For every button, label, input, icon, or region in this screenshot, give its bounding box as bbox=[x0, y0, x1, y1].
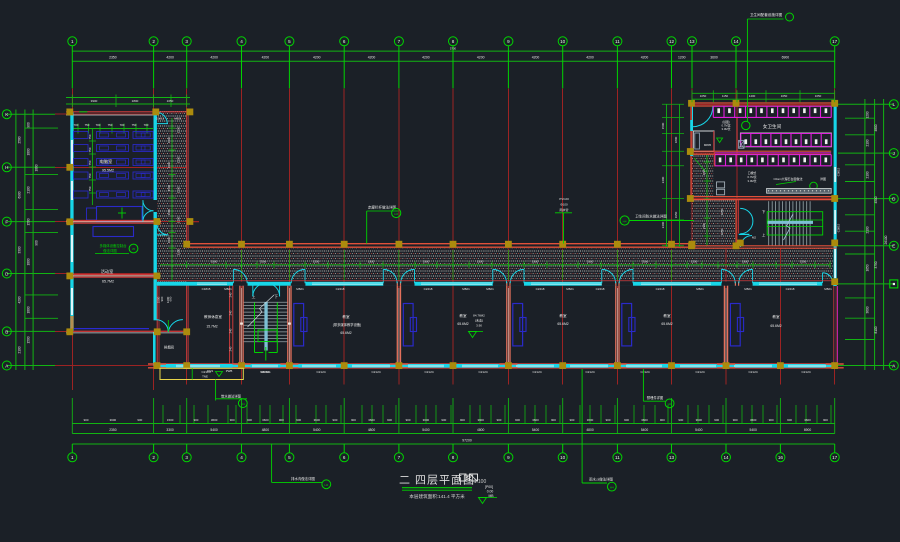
svg-text:2350: 2350 bbox=[109, 428, 117, 432]
svg-text:6900: 6900 bbox=[804, 428, 812, 432]
svg-text:C0815: C0815 bbox=[837, 223, 841, 232]
svg-text:750: 750 bbox=[88, 186, 92, 191]
svg-text:900: 900 bbox=[332, 418, 337, 422]
svg-text:5400: 5400 bbox=[641, 428, 649, 432]
svg-text:2100: 2100 bbox=[702, 222, 706, 229]
svg-text:750: 750 bbox=[85, 123, 90, 127]
svg-text:3600: 3600 bbox=[314, 418, 321, 422]
svg-text:上: 上 bbox=[252, 294, 256, 299]
svg-text:3600: 3600 bbox=[423, 418, 430, 422]
svg-text:排烟间: 排烟间 bbox=[164, 345, 174, 350]
svg-text:3600: 3600 bbox=[211, 418, 218, 422]
svg-text:3: 3 bbox=[185, 39, 188, 44]
svg-text:本层建筑面积:141.4 平方米: 本层建筑面积:141.4 平方米 bbox=[409, 493, 465, 500]
svg-text:4200: 4200 bbox=[262, 56, 270, 60]
svg-text:3600: 3600 bbox=[532, 418, 539, 422]
svg-text:7: 7 bbox=[398, 39, 401, 44]
svg-text:TNE: TNE bbox=[202, 375, 208, 379]
svg-text:1200: 1200 bbox=[866, 111, 870, 118]
svg-text:4200: 4200 bbox=[18, 296, 22, 303]
svg-text:3300: 3300 bbox=[532, 259, 539, 263]
svg-text:3600: 3600 bbox=[804, 418, 811, 422]
svg-text:C2124: C2124 bbox=[801, 370, 810, 374]
svg-text:2: 2 bbox=[152, 455, 155, 460]
svg-text:240: 240 bbox=[229, 292, 233, 297]
svg-text:E: E bbox=[892, 244, 895, 249]
svg-text:教室: 教室 bbox=[459, 313, 467, 318]
svg-text:2580: 2580 bbox=[18, 136, 22, 143]
svg-text:H4: H4 bbox=[241, 402, 245, 406]
svg-text:750: 750 bbox=[88, 173, 92, 178]
svg-text:5400: 5400 bbox=[695, 428, 703, 432]
svg-text:65.6M2: 65.6M2 bbox=[340, 331, 351, 335]
svg-text:2350: 2350 bbox=[109, 56, 117, 60]
svg-text:4800: 4800 bbox=[874, 124, 878, 131]
svg-text:M805: M805 bbox=[704, 143, 712, 147]
svg-text:26100: 26100 bbox=[884, 235, 888, 244]
svg-text:6: 6 bbox=[343, 455, 346, 460]
svg-text:12: 12 bbox=[669, 39, 675, 44]
svg-text:11: 11 bbox=[615, 39, 620, 44]
svg-text:5400: 5400 bbox=[422, 428, 430, 432]
svg-text:3900: 3900 bbox=[91, 99, 98, 103]
svg-text:0.00: 0.00 bbox=[487, 490, 494, 494]
svg-text:C1815: C1815 bbox=[156, 117, 165, 121]
svg-text:3300: 3300 bbox=[368, 259, 375, 263]
svg-text:1521: 1521 bbox=[207, 369, 214, 373]
svg-text:H4: H4 bbox=[324, 483, 328, 487]
svg-text:2100: 2100 bbox=[177, 248, 181, 255]
svg-text:900: 900 bbox=[387, 418, 392, 422]
svg-text:C1815: C1815 bbox=[202, 287, 211, 291]
svg-text:900: 900 bbox=[733, 418, 738, 422]
svg-text:3600: 3600 bbox=[641, 418, 648, 422]
svg-text:C2418: C2418 bbox=[596, 287, 605, 291]
svg-text:C2418: C2418 bbox=[786, 287, 795, 291]
svg-text:700: 700 bbox=[144, 123, 149, 127]
svg-text:900: 900 bbox=[194, 418, 199, 422]
svg-text:下: 下 bbox=[762, 210, 766, 214]
svg-text:900: 900 bbox=[441, 418, 446, 422]
svg-text:95.5M2: 95.5M2 bbox=[102, 169, 114, 173]
svg-text:3300: 3300 bbox=[642, 259, 649, 263]
svg-text:1500: 1500 bbox=[167, 236, 171, 243]
svg-text:M821: M821 bbox=[224, 287, 232, 291]
svg-text:教室: 教室 bbox=[559, 313, 567, 318]
svg-text:4800: 4800 bbox=[477, 428, 485, 432]
svg-text:M821: M821 bbox=[744, 287, 752, 291]
svg-text:教师休息室: 教师休息室 bbox=[204, 314, 222, 319]
svg-text:1650: 1650 bbox=[815, 94, 822, 98]
svg-text:900: 900 bbox=[551, 418, 556, 422]
svg-text:教室: 教室 bbox=[663, 313, 671, 318]
svg-text:预埋件详图: 预埋件详图 bbox=[647, 395, 664, 400]
svg-text:4200: 4200 bbox=[210, 56, 218, 60]
svg-text:M2: M2 bbox=[752, 236, 756, 240]
svg-text:900: 900 bbox=[769, 418, 774, 422]
svg-text:J5: J5 bbox=[132, 247, 136, 251]
svg-text:H: H bbox=[5, 165, 8, 170]
svg-text:4200: 4200 bbox=[166, 56, 174, 60]
svg-text:9: 9 bbox=[507, 39, 510, 44]
svg-text:900: 900 bbox=[606, 418, 611, 422]
svg-text:女卫生间: 女卫生间 bbox=[763, 123, 782, 130]
svg-text:F: F bbox=[5, 220, 8, 225]
svg-text:14: 14 bbox=[723, 455, 729, 460]
svg-text:900: 900 bbox=[460, 418, 465, 422]
svg-text:3600: 3600 bbox=[587, 418, 594, 422]
svg-text:排水沟做法详图: 排水沟做法详图 bbox=[291, 476, 315, 481]
svg-text:1950: 1950 bbox=[674, 211, 678, 218]
svg-text:4200: 4200 bbox=[641, 56, 649, 60]
svg-text:1500: 1500 bbox=[27, 336, 31, 343]
svg-text:1800: 1800 bbox=[27, 258, 31, 265]
svg-text:雨水斗做法详图: 雨水斗做法详图 bbox=[589, 477, 613, 482]
svg-text:5400: 5400 bbox=[532, 428, 540, 432]
svg-text:3300: 3300 bbox=[423, 259, 430, 263]
svg-text:8: 8 bbox=[452, 39, 455, 44]
svg-text:11: 11 bbox=[615, 455, 620, 460]
svg-text:2100: 2100 bbox=[177, 186, 181, 193]
svg-text:3600: 3600 bbox=[750, 418, 757, 422]
svg-text:C2418: C2418 bbox=[336, 287, 345, 291]
svg-text:2100: 2100 bbox=[866, 171, 870, 178]
svg-text:C2124: C2124 bbox=[478, 370, 487, 374]
svg-text:C0815: C0815 bbox=[837, 167, 841, 176]
svg-text:5: 5 bbox=[288, 455, 291, 460]
svg-text:教室: 教室 bbox=[772, 314, 780, 319]
svg-text:2400: 2400 bbox=[661, 221, 665, 228]
svg-text:4200: 4200 bbox=[313, 56, 321, 60]
svg-text:5400: 5400 bbox=[313, 428, 321, 432]
svg-text:700: 700 bbox=[96, 123, 101, 127]
svg-text:4800: 4800 bbox=[368, 428, 376, 432]
svg-text:M821: M821 bbox=[824, 287, 832, 291]
svg-text:4200: 4200 bbox=[532, 56, 540, 60]
svg-text:1400: 1400 bbox=[749, 94, 756, 98]
svg-text:3300: 3300 bbox=[587, 259, 594, 263]
svg-text:16: 16 bbox=[778, 455, 784, 460]
svg-text:1500: 1500 bbox=[27, 218, 31, 225]
svg-text:PWB: PWB bbox=[226, 369, 233, 373]
svg-text:H4: H4 bbox=[623, 219, 627, 223]
svg-text:65.6M2: 65.6M2 bbox=[557, 322, 568, 326]
svg-text:1500: 1500 bbox=[661, 122, 665, 129]
svg-text:900: 900 bbox=[497, 418, 502, 422]
svg-text:[未含]: [未含] bbox=[475, 318, 483, 323]
svg-text:1800: 1800 bbox=[27, 148, 31, 155]
svg-text:900: 900 bbox=[714, 418, 719, 422]
svg-text:750: 750 bbox=[108, 123, 113, 127]
svg-text:900: 900 bbox=[351, 418, 356, 422]
svg-text:散水做法详图: 散水做法详图 bbox=[221, 393, 241, 398]
svg-text:C2418: C2418 bbox=[656, 287, 665, 291]
svg-text:700: 700 bbox=[74, 123, 79, 127]
svg-text:详图: 详图 bbox=[820, 176, 826, 181]
svg-text:1650: 1650 bbox=[781, 94, 788, 98]
svg-text:900: 900 bbox=[27, 122, 31, 128]
svg-text:13: 13 bbox=[669, 455, 675, 460]
svg-text:4200: 4200 bbox=[422, 56, 430, 60]
svg-text:900: 900 bbox=[406, 418, 411, 422]
svg-text:1800: 1800 bbox=[27, 306, 31, 313]
svg-text:5: 5 bbox=[288, 39, 291, 44]
svg-text:教室: 教室 bbox=[342, 314, 350, 319]
svg-text:雨水管: 雨水管 bbox=[559, 207, 568, 212]
svg-text:84.76M2: 84.76M2 bbox=[473, 314, 485, 318]
svg-text:二 四层平面图: 二 四层平面图 bbox=[399, 474, 475, 487]
svg-text:14: 14 bbox=[733, 39, 739, 44]
svg-text:3300: 3300 bbox=[166, 428, 174, 432]
svg-text:750: 750 bbox=[132, 123, 137, 127]
svg-text:97200: 97200 bbox=[462, 438, 472, 442]
svg-text:6: 6 bbox=[343, 39, 346, 44]
svg-text:8: 8 bbox=[452, 455, 455, 460]
svg-text:3.0M长: 3.0M长 bbox=[747, 179, 756, 183]
svg-text:3750: 3750 bbox=[874, 261, 878, 268]
svg-text:4500: 4500 bbox=[874, 196, 878, 203]
svg-text:M821: M821 bbox=[486, 287, 494, 291]
svg-text:10: 10 bbox=[560, 39, 566, 44]
svg-text:240: 240 bbox=[229, 310, 233, 315]
svg-text:C2418: C2418 bbox=[536, 287, 545, 291]
svg-text:6900: 6900 bbox=[782, 56, 790, 60]
svg-text:3.0M长: 3.0M长 bbox=[721, 127, 730, 131]
svg-text:H4: H4 bbox=[394, 212, 398, 216]
svg-text:900: 900 bbox=[230, 418, 235, 422]
svg-text:4: 4 bbox=[240, 39, 243, 44]
svg-text:L: L bbox=[893, 102, 896, 107]
svg-text:10: 10 bbox=[560, 455, 566, 460]
svg-text:活动室: 活动室 bbox=[101, 268, 114, 275]
svg-text:1800: 1800 bbox=[674, 136, 678, 143]
svg-text:3300: 3300 bbox=[313, 259, 320, 263]
svg-text:5400: 5400 bbox=[210, 428, 218, 432]
svg-text:17: 17 bbox=[832, 39, 838, 44]
svg-text:4800: 4800 bbox=[262, 428, 270, 432]
svg-text:1: 1 bbox=[71, 39, 74, 44]
svg-text:65.6M2: 65.6M2 bbox=[661, 322, 672, 326]
svg-text:M821: M821 bbox=[296, 287, 304, 291]
svg-text:4800: 4800 bbox=[586, 428, 594, 432]
svg-text:C2124: C2124 bbox=[532, 370, 541, 374]
svg-text:1650: 1650 bbox=[720, 228, 724, 235]
svg-text:900: 900 bbox=[823, 418, 828, 422]
svg-text:900: 900 bbox=[787, 418, 792, 422]
svg-text:C2124: C2124 bbox=[371, 370, 380, 374]
svg-text:2100: 2100 bbox=[177, 216, 181, 223]
svg-text:900: 900 bbox=[279, 418, 284, 422]
svg-text:4200: 4200 bbox=[368, 56, 376, 60]
svg-text:H4: H4 bbox=[610, 485, 614, 489]
svg-text:900: 900 bbox=[247, 418, 252, 422]
svg-text:C0am大理石台面做法: C0am大理石台面做法 bbox=[773, 176, 802, 181]
svg-text:3.90: 3.90 bbox=[476, 324, 482, 328]
svg-text:PVC20: PVC20 bbox=[559, 197, 569, 201]
svg-text:900: 900 bbox=[624, 418, 629, 422]
svg-text:M821: M821 bbox=[696, 287, 704, 291]
svg-text:65.6M2: 65.6M2 bbox=[457, 322, 468, 326]
svg-text:1050: 1050 bbox=[700, 94, 707, 98]
svg-text:J: J bbox=[893, 151, 895, 156]
svg-text:3300: 3300 bbox=[742, 259, 749, 263]
svg-text:750: 750 bbox=[88, 134, 92, 139]
svg-text:1200: 1200 bbox=[678, 56, 686, 60]
svg-text:4200: 4200 bbox=[586, 56, 594, 60]
svg-text:900: 900 bbox=[678, 418, 683, 422]
svg-text:2100: 2100 bbox=[866, 139, 870, 146]
svg-text:C2124: C2124 bbox=[585, 370, 594, 374]
svg-text:900: 900 bbox=[35, 240, 39, 246]
svg-text:1: 1 bbox=[71, 455, 74, 460]
svg-text:1500: 1500 bbox=[167, 208, 171, 215]
svg-text:4200: 4200 bbox=[477, 56, 485, 60]
svg-text:1500: 1500 bbox=[167, 184, 171, 191]
svg-text:2100: 2100 bbox=[177, 156, 181, 163]
svg-text:C2124: C2124 bbox=[316, 370, 325, 374]
svg-text:65.7M2: 65.7M2 bbox=[102, 280, 114, 284]
svg-text:上: 上 bbox=[762, 233, 766, 238]
svg-text:[P00]: [P00] bbox=[485, 485, 493, 489]
svg-text:C2124: C2124 bbox=[748, 370, 757, 374]
svg-text:3600: 3600 bbox=[368, 418, 375, 422]
svg-text:C2124: C2124 bbox=[424, 370, 433, 374]
svg-text:1500: 1500 bbox=[167, 418, 174, 422]
svg-text:3300: 3300 bbox=[18, 246, 22, 253]
svg-text:5700: 5700 bbox=[450, 47, 457, 51]
svg-text:3600: 3600 bbox=[696, 418, 703, 422]
svg-text:C2124: C2124 bbox=[640, 370, 649, 374]
svg-text:2100: 2100 bbox=[27, 186, 31, 193]
svg-text:3300: 3300 bbox=[800, 259, 807, 263]
svg-text:卫生间防水做法详图: 卫生间防水做法详图 bbox=[635, 214, 667, 219]
svg-text:15.7M2: 15.7M2 bbox=[206, 325, 217, 329]
svg-text:900: 900 bbox=[515, 418, 520, 422]
svg-text:B: B bbox=[5, 329, 8, 334]
svg-text:1650: 1650 bbox=[167, 99, 174, 103]
svg-text:750: 750 bbox=[88, 160, 92, 165]
svg-text:Φ100: Φ100 bbox=[560, 203, 568, 207]
svg-text:3: 3 bbox=[185, 455, 188, 460]
svg-text:C2418: C2418 bbox=[424, 287, 433, 291]
svg-text:M821: M821 bbox=[566, 287, 574, 291]
svg-text:3600: 3600 bbox=[866, 306, 870, 313]
svg-text:3300: 3300 bbox=[691, 259, 698, 263]
svg-text:1650: 1650 bbox=[720, 208, 724, 215]
svg-text:做法详图: 做法详图 bbox=[103, 248, 117, 253]
svg-text:900: 900 bbox=[296, 418, 301, 422]
svg-text:8100: 8100 bbox=[874, 326, 878, 333]
svg-text:走廊栏杆做法详图: 走廊栏杆做法详图 bbox=[368, 205, 396, 210]
svg-text:6900: 6900 bbox=[18, 191, 22, 198]
svg-text:900: 900 bbox=[160, 296, 164, 301]
svg-text:2100: 2100 bbox=[177, 126, 181, 133]
svg-text:3300: 3300 bbox=[260, 259, 267, 263]
svg-text:3600: 3600 bbox=[710, 56, 718, 60]
svg-text:5400: 5400 bbox=[750, 428, 758, 432]
svg-text:750: 750 bbox=[88, 147, 92, 152]
svg-text:1800: 1800 bbox=[132, 99, 139, 103]
svg-text:(带多媒体教学设备): (带多媒体教学设备) bbox=[333, 322, 362, 327]
svg-text:3600: 3600 bbox=[477, 418, 484, 422]
svg-text:7: 7 bbox=[398, 455, 401, 460]
svg-text:1800: 1800 bbox=[35, 164, 39, 171]
svg-text:M821: M821 bbox=[462, 287, 470, 291]
svg-text:2100: 2100 bbox=[18, 346, 22, 353]
svg-text:65.6M2: 65.6M2 bbox=[770, 324, 781, 328]
svg-text:3600: 3600 bbox=[262, 418, 269, 422]
svg-text:1650: 1650 bbox=[866, 264, 870, 271]
svg-text:700: 700 bbox=[120, 123, 125, 127]
svg-text:下: 下 bbox=[274, 295, 278, 299]
svg-text:17: 17 bbox=[832, 455, 838, 460]
svg-text:1500: 1500 bbox=[167, 136, 171, 143]
svg-text:卫生间配套设施详图: 卫生间配套设施详图 bbox=[750, 12, 783, 17]
svg-text:H4: H4 bbox=[668, 402, 672, 406]
svg-text:240: 240 bbox=[229, 346, 233, 351]
svg-text:2: 2 bbox=[152, 39, 155, 44]
svg-text:900: 900 bbox=[660, 418, 665, 422]
svg-text:600: 600 bbox=[169, 296, 173, 301]
svg-text:4: 4 bbox=[240, 455, 243, 460]
svg-text:3300: 3300 bbox=[211, 259, 218, 263]
svg-text:2100: 2100 bbox=[866, 226, 870, 233]
svg-text:2400: 2400 bbox=[661, 176, 665, 183]
svg-text:电脑室: 电脑室 bbox=[100, 158, 113, 165]
svg-text:C2124: C2124 bbox=[695, 370, 704, 374]
svg-text:多媒体设备控制台: 多媒体设备控制台 bbox=[99, 243, 127, 248]
svg-text:3300: 3300 bbox=[477, 259, 484, 263]
svg-text:1500: 1500 bbox=[167, 161, 171, 168]
svg-text:900: 900 bbox=[570, 418, 575, 422]
svg-text:M821: M821 bbox=[174, 117, 182, 121]
svg-text:900: 900 bbox=[137, 418, 142, 422]
svg-text:M1521: M1521 bbox=[261, 370, 271, 374]
svg-text:1150: 1150 bbox=[722, 94, 729, 98]
svg-text:3600: 3600 bbox=[110, 418, 117, 422]
svg-text:240: 240 bbox=[229, 328, 233, 333]
svg-text:13: 13 bbox=[689, 39, 695, 44]
svg-text:900: 900 bbox=[84, 418, 89, 422]
svg-text:9: 9 bbox=[507, 455, 510, 460]
